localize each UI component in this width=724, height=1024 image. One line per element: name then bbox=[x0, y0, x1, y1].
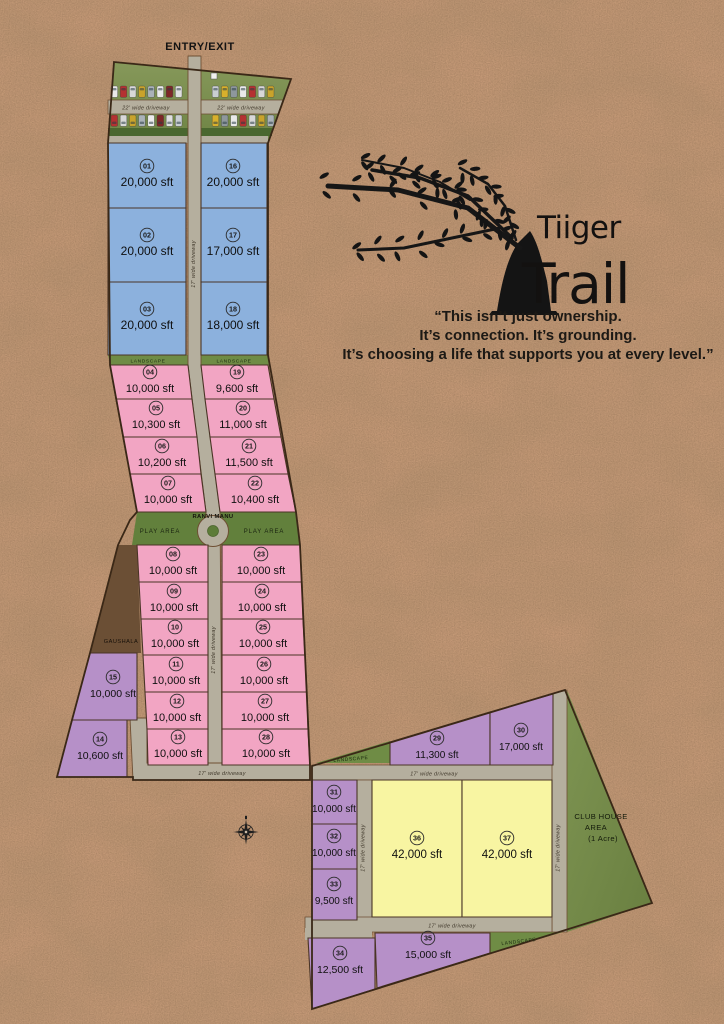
plot-number: 06 bbox=[158, 442, 166, 451]
plot-number: 17 bbox=[229, 231, 237, 240]
roundabout-name-label: RANVI MANU bbox=[192, 514, 233, 520]
plot-36: 3642,000 sft bbox=[372, 780, 462, 917]
plot-number: 30 bbox=[517, 726, 525, 735]
plot-number: 20 bbox=[239, 404, 247, 413]
plot-number: 27 bbox=[261, 697, 269, 706]
plot-number: 23 bbox=[257, 550, 265, 559]
site-map: 0120,000 sft0220,000 sft0320,000 sft0410… bbox=[0, 0, 724, 1024]
plot-size: 20,000 sft bbox=[121, 244, 174, 258]
quote-line2: It’s connection. It’s grounding. bbox=[419, 327, 636, 344]
brand-name-line2: Trail bbox=[521, 252, 629, 316]
plot-number: 01 bbox=[143, 162, 151, 171]
plot-size: 10,000 sft bbox=[312, 848, 356, 859]
plot-size: 10,200 sft bbox=[138, 457, 186, 469]
plot-09: 0910,000 sft bbox=[139, 582, 208, 619]
plot-number: 19 bbox=[233, 368, 241, 377]
plot-12: 1210,000 sft bbox=[145, 692, 208, 729]
plot-19: 199,600 sft bbox=[201, 365, 274, 399]
plot-size: 10,000 sft bbox=[237, 565, 285, 577]
plot-27: 2710,000 sft bbox=[222, 692, 308, 729]
plot-size: 10,000 sft bbox=[152, 675, 200, 687]
plot-31: 3110,000 sft bbox=[312, 780, 357, 824]
play-area-label-left: PLAY AREA bbox=[140, 529, 181, 535]
driveway-17-label-upper: 17' wide driveway bbox=[191, 240, 197, 287]
plot-number: 21 bbox=[245, 442, 253, 451]
plot-number: 25 bbox=[259, 623, 267, 632]
driveway-17-label-mid: 17' wide driveway bbox=[211, 626, 217, 673]
plot-size: 20,000 sft bbox=[207, 175, 260, 189]
plot-size: 17,000 sft bbox=[499, 742, 543, 753]
plot-number: 13 bbox=[174, 733, 182, 742]
plot-16: 1620,000 sft bbox=[201, 143, 267, 208]
plot-20: 2011,000 sft bbox=[205, 399, 281, 437]
plot-number: 10 bbox=[171, 623, 179, 632]
plot-05: 0510,300 sft bbox=[116, 399, 197, 437]
plot-size: 9,600 sft bbox=[216, 383, 258, 395]
plot-size: 10,000 sft bbox=[153, 712, 201, 724]
plot-size: 10,000 sft bbox=[154, 748, 202, 760]
plot-size: 10,000 sft bbox=[150, 602, 198, 614]
plot-32: 3210,000 sft bbox=[312, 824, 357, 869]
plot-26: 2610,000 sft bbox=[222, 655, 307, 692]
driveway-22-label-left: 22' wide driveway bbox=[121, 106, 169, 112]
gate-booth bbox=[211, 73, 217, 79]
plot-04: 0410,000 sft bbox=[110, 365, 192, 399]
brand-name-line1: Tiiger bbox=[536, 210, 621, 246]
plot-number: 22 bbox=[251, 479, 259, 488]
plot-17: 1717,000 sft bbox=[201, 208, 267, 282]
quote-line1: “This isn’t just ownership. bbox=[434, 308, 622, 325]
plot-shape bbox=[312, 869, 357, 920]
plot-size: 20,000 sft bbox=[121, 175, 174, 189]
plot-size: 10,000 sft bbox=[241, 712, 289, 724]
plot-number: 36 bbox=[413, 834, 421, 843]
roundabout-green bbox=[208, 526, 219, 537]
plot-shape bbox=[312, 780, 357, 824]
plot-25: 2510,000 sft bbox=[222, 619, 305, 655]
plot-size: 10,000 sft bbox=[149, 565, 197, 577]
plot-size: 42,000 sft bbox=[482, 849, 533, 861]
plot-size: 42,000 sft bbox=[392, 849, 443, 861]
plot-size: 15,000 sft bbox=[405, 949, 451, 961]
gaushala-label: GAUSHALA bbox=[104, 639, 138, 645]
plot-37: 3742,000 sft bbox=[462, 780, 552, 917]
plot-28: 2810,000 sft bbox=[222, 729, 310, 765]
play-area-label-right: PLAY AREA bbox=[244, 529, 285, 535]
plot-13: 1310,000 sft bbox=[147, 729, 208, 765]
plot-number: 12 bbox=[173, 697, 181, 706]
plot-size: 10,000 sft bbox=[144, 494, 192, 506]
plot-size: 10,000 sft bbox=[239, 638, 287, 650]
plot-size: 12,500 sft bbox=[317, 964, 363, 976]
club-house-label-1: CLUB HOUSE bbox=[574, 812, 627, 821]
landscape-label-right: LANDSCAPE bbox=[216, 359, 251, 365]
plot-size: 10,300 sft bbox=[132, 419, 180, 431]
plot-size: 11,000 sft bbox=[219, 419, 267, 431]
plot-number: 14 bbox=[96, 735, 104, 744]
plot-number: 07 bbox=[164, 479, 172, 488]
plot-22: 2210,400 sft bbox=[215, 474, 296, 512]
plot-10: 1010,000 sft bbox=[141, 619, 208, 655]
plot-number: 26 bbox=[260, 660, 268, 669]
plot-number: 08 bbox=[169, 550, 177, 559]
plot-size: 10,400 sft bbox=[231, 494, 279, 506]
plot-number: 18 bbox=[229, 305, 237, 314]
plot-07: 0710,000 sft bbox=[130, 474, 206, 512]
br-east-driveway bbox=[552, 690, 567, 932]
entry-exit-label: ENTRY/EXIT bbox=[165, 41, 234, 53]
plot-number: 09 bbox=[170, 587, 178, 596]
plot-size: 11,300 sft bbox=[415, 750, 458, 761]
driveway-17-label-br-top: 17' wide driveway bbox=[410, 772, 457, 778]
plot-number: 37 bbox=[503, 834, 511, 843]
plot-06: 0610,200 sft bbox=[123, 437, 201, 474]
plot-number: 05 bbox=[152, 404, 160, 413]
plot-number: 29 bbox=[433, 734, 441, 743]
quote-line3: It’s choosing a life that supports you a… bbox=[342, 346, 713, 363]
plot-number: 35 bbox=[424, 934, 432, 943]
plot-number: 31 bbox=[330, 788, 338, 797]
plot-size: 10,000 sft bbox=[238, 602, 286, 614]
plot-size: 10,000 sft bbox=[151, 638, 199, 650]
plot-size: 10,000 sft bbox=[240, 675, 288, 687]
plot-23: 2310,000 sft bbox=[222, 545, 302, 582]
plot-size: 10,000 sft bbox=[126, 383, 174, 395]
layout-flyer: 0120,000 sft0220,000 sft0320,000 sft0410… bbox=[0, 0, 724, 1024]
plot-size: 10,600 sft bbox=[77, 750, 123, 762]
plot-03: 0320,000 sft bbox=[108, 282, 186, 355]
plot-number: 24 bbox=[258, 587, 266, 596]
plot-08: 0810,000 sft bbox=[137, 545, 208, 582]
plot-number: 04 bbox=[146, 368, 154, 377]
landscape-label-left: LANDSCAPE bbox=[130, 359, 165, 365]
plot-number: 28 bbox=[262, 733, 270, 742]
plot-number: 02 bbox=[143, 231, 151, 240]
driveway-22-label-right: 22' wide driveway bbox=[216, 106, 264, 112]
plot-18: 1818,000 sft bbox=[201, 282, 267, 355]
plot-size: 10,000 sft bbox=[242, 748, 290, 760]
plot-size: 10,000 sft bbox=[312, 804, 356, 815]
plot-number: 11 bbox=[172, 660, 180, 669]
plot-size: 9,500 sft bbox=[315, 896, 354, 907]
plot-size: 17,000 sft bbox=[207, 244, 260, 258]
plot-number: 33 bbox=[330, 880, 338, 889]
driveway-17-label-br-east: 17' wide driveway bbox=[556, 824, 562, 871]
plot-24: 2410,000 sft bbox=[222, 582, 303, 619]
plot-size: 11,500 sft bbox=[225, 457, 273, 469]
plot-size: 10,000 sft bbox=[90, 688, 136, 700]
plot-number: 34 bbox=[336, 949, 344, 958]
plot-01: 0120,000 sft bbox=[108, 143, 186, 208]
plot-number: 03 bbox=[143, 305, 151, 314]
club-house-label-2: AREA bbox=[585, 823, 608, 832]
plot-21: 2111,500 sft bbox=[210, 437, 288, 474]
plot-33: 339,500 sft bbox=[312, 869, 357, 920]
plot-number: 15 bbox=[109, 673, 117, 682]
plot-number: 16 bbox=[229, 162, 237, 171]
driveway-17-label-west: 17' wide driveway bbox=[198, 771, 245, 777]
club-house-label-3: (1 Acre) bbox=[588, 834, 618, 843]
plot-02: 0220,000 sft bbox=[108, 208, 186, 282]
plot-11: 1110,000 sft bbox=[143, 655, 208, 692]
plot-size: 20,000 sft bbox=[121, 318, 174, 332]
driveway-17-label-br-bottom: 17' wide driveway bbox=[428, 924, 475, 930]
plot-size: 18,000 sft bbox=[207, 318, 260, 332]
plot-number: 32 bbox=[330, 832, 338, 841]
driveway-17-label-br-west: 17' wide driveway bbox=[361, 824, 367, 871]
